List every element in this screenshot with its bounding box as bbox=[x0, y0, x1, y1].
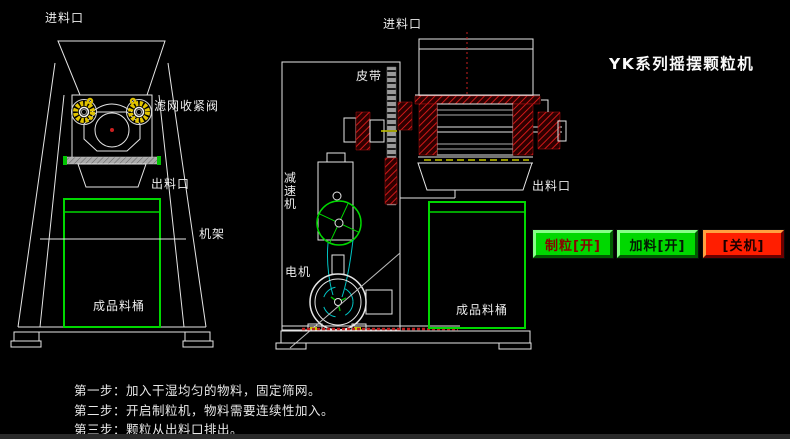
label-side-outlet: 出料口 bbox=[532, 180, 571, 193]
bottom-bar bbox=[0, 434, 790, 439]
outlet-chute-side bbox=[418, 163, 532, 190]
label-front-barrel: 成品料桶 bbox=[93, 300, 145, 313]
motor-body bbox=[308, 255, 392, 330]
hmi-screen: 进料口 滤网收紧阀 出料口 机架 成品料桶 进料口 皮带 减速机 电机 出料口 … bbox=[0, 0, 790, 439]
feed-hopper bbox=[58, 41, 165, 95]
machine-base bbox=[276, 326, 531, 349]
label-belt: 皮带 bbox=[356, 70, 382, 83]
instruction-step-2: 第二步：开启制粒机，物料需要连续性加入。 bbox=[74, 400, 334, 419]
machine-foot bbox=[183, 332, 213, 347]
granulate-on-button[interactable]: 制粒[开] bbox=[533, 230, 613, 258]
instruction-step-1: 第一步：加入干湿均匀的物料，固定筛网。 bbox=[74, 380, 321, 399]
outlet-chute bbox=[78, 164, 146, 187]
label-side-barrel: 成品料桶 bbox=[456, 304, 508, 317]
shutdown-button[interactable]: [关机] bbox=[703, 230, 784, 258]
feed-on-button[interactable]: 加料[开] bbox=[617, 230, 698, 258]
drive-shaft-parts bbox=[344, 102, 412, 204]
label-side-inlet: 进料口 bbox=[383, 18, 422, 31]
label-front-outlet: 出料口 bbox=[151, 178, 190, 191]
feed-hopper-side bbox=[419, 39, 533, 96]
label-reducer: 减速机 bbox=[284, 172, 298, 211]
side-view-drawing bbox=[276, 32, 566, 349]
label-motor: 电机 bbox=[285, 266, 311, 279]
page-title: YK系列摇摆颗粒机 bbox=[609, 52, 754, 74]
machine-foot bbox=[11, 332, 41, 347]
pulley-wheel bbox=[310, 194, 368, 252]
sieve-bar bbox=[66, 157, 158, 164]
roller-drum-section bbox=[419, 100, 566, 155]
label-front-inlet: 进料口 bbox=[45, 12, 84, 25]
label-frame: 机架 bbox=[199, 228, 225, 241]
sieve-knob-right bbox=[127, 99, 152, 125]
label-sieve-valve: 滤网收紧阀 bbox=[154, 100, 219, 113]
